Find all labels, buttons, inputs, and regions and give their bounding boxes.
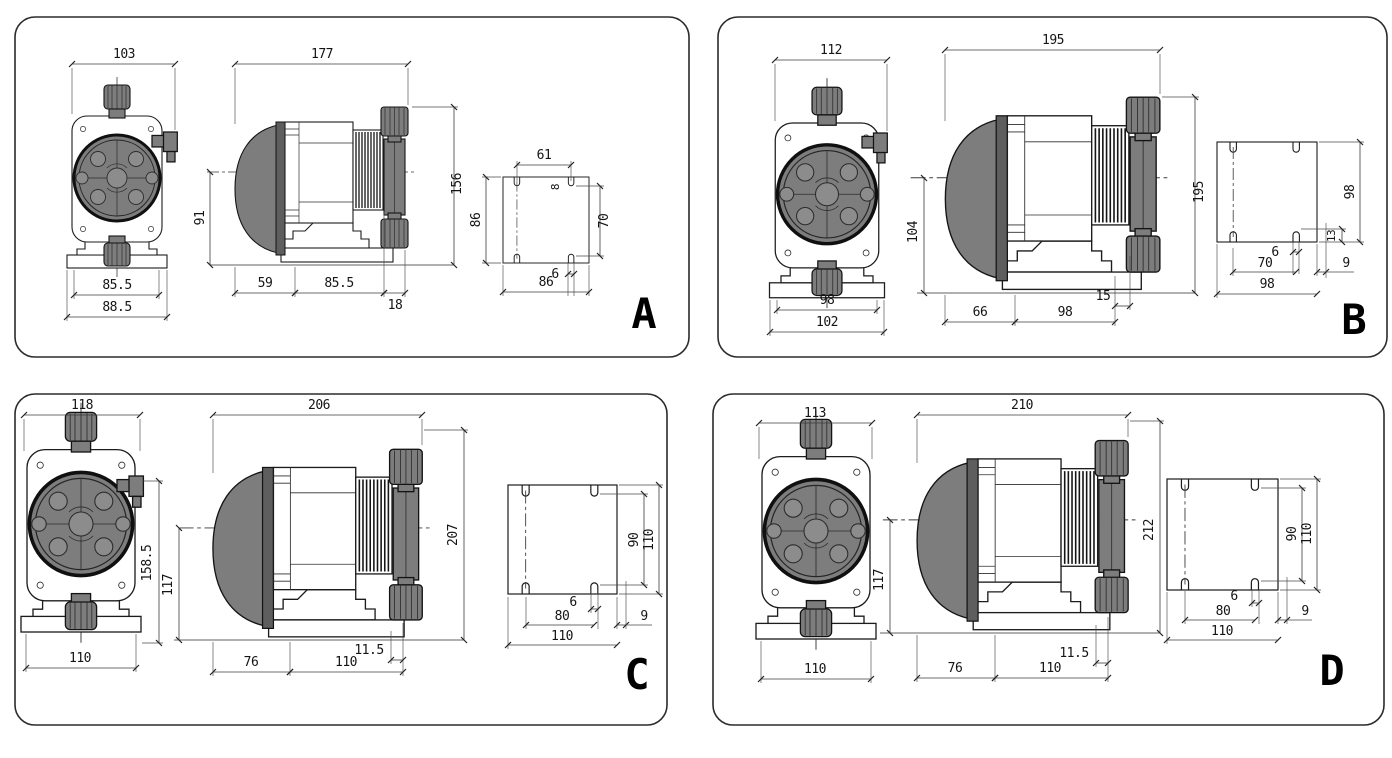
side-view xyxy=(911,97,1195,293)
panel-d: 113 110 210 212 117 76 110 11.5 90 xyxy=(712,393,1385,726)
dim-text: 6 xyxy=(569,595,576,610)
dim-text: 210 xyxy=(1011,398,1033,413)
dim-text: 85.5 xyxy=(324,276,353,291)
panel-label: A xyxy=(631,289,656,338)
dim-text: 118 xyxy=(71,398,93,413)
dimension-plate-bottom-width: 98 xyxy=(1217,244,1317,298)
side-view xyxy=(880,441,1160,633)
dim-text: 76 xyxy=(948,661,963,676)
dim-text: 206 xyxy=(308,398,330,413)
dim-text: 9 xyxy=(1342,256,1349,271)
dimension-plate-slot-width: 6 xyxy=(1271,245,1299,260)
dim-text: 113 xyxy=(804,406,826,421)
dim-text: 195 xyxy=(1192,181,1207,203)
dimension-side-height: 156 xyxy=(412,107,465,265)
dimension-plate-bottom-width: 86 xyxy=(503,265,589,296)
dimension-plate-edge-offset: 9 xyxy=(1317,244,1354,276)
dim-text: 98 xyxy=(1058,305,1073,320)
dim-text: 110 xyxy=(1039,661,1061,676)
dim-text: 110 xyxy=(1211,624,1233,639)
dim-text: 103 xyxy=(113,47,135,62)
front-view xyxy=(770,78,888,308)
dim-text: 86 xyxy=(539,275,554,290)
dim-text: 110 xyxy=(1300,523,1315,545)
dim-text: 98 xyxy=(820,293,835,308)
dim-text: 110 xyxy=(642,529,657,551)
dim-text: 104 xyxy=(906,220,921,243)
dim-text: 18 xyxy=(388,298,403,313)
dimension-side-center-height: 117 xyxy=(161,528,179,640)
dim-text: 76 xyxy=(244,655,259,670)
dim-text: 90 xyxy=(1285,527,1300,542)
dim-text: 59 xyxy=(258,276,273,291)
dimension-plate-slot-width: 6 xyxy=(1230,589,1259,604)
dim-text: 98 xyxy=(1260,277,1275,292)
dim-text: 6 xyxy=(1271,245,1278,260)
dimension-side-center-height: 104 xyxy=(906,178,924,293)
side-view xyxy=(174,449,464,640)
dim-text: 117 xyxy=(161,574,176,596)
dim-text: 86 xyxy=(469,213,484,228)
side-view xyxy=(207,107,454,265)
dim-text: 156 xyxy=(450,173,465,195)
dim-text: 90 xyxy=(627,533,642,548)
dim-text: 117 xyxy=(872,569,887,591)
dim-text: 15 xyxy=(1096,289,1111,304)
dimension-plate-left-height: 86 xyxy=(469,177,501,263)
dim-text: 11.5 xyxy=(354,643,383,658)
panel-b: 112 98 102 195 195 104 66 98 15 98 xyxy=(717,16,1388,358)
dimension-side-height: 207 xyxy=(424,430,468,640)
dim-text: 88.5 xyxy=(102,300,131,315)
dim-text: 195 xyxy=(1042,33,1064,48)
dimension-plate-edge-offset: 9 xyxy=(617,597,652,629)
dim-text: 158.5 xyxy=(140,545,155,582)
dimension-side-height: 212 xyxy=(1130,421,1164,633)
panel-label: D xyxy=(1319,646,1344,695)
dim-text: 70 xyxy=(597,214,612,229)
dimension-plate-slot-span: 80 xyxy=(526,597,594,629)
dim-text: 212 xyxy=(1142,519,1157,541)
panel-c: 118 158.5 110 206 207 117 76 110 11.5 xyxy=(14,393,668,726)
dim-text: 110 xyxy=(804,662,826,677)
dimension-plate-slot-span: 70 xyxy=(1233,248,1296,276)
dim-text: 91 xyxy=(193,211,208,226)
dimension-front-base: 85.5 xyxy=(74,270,159,299)
dimension-plate-slot-width: 6 xyxy=(551,267,574,282)
dimension-plate-edge-offset: 9 xyxy=(1278,592,1312,624)
dim-text: 112 xyxy=(820,43,842,58)
dimension-side-height: 195 xyxy=(1162,97,1207,293)
dim-text: 80 xyxy=(1216,604,1231,619)
dim-text: 207 xyxy=(446,524,461,546)
dim-text: 9 xyxy=(1301,604,1308,619)
dimension-plate-slot-span: 80 xyxy=(1185,591,1255,624)
panel-label: B xyxy=(1341,295,1366,344)
front-view xyxy=(21,403,143,643)
dim-text: 177 xyxy=(311,47,333,62)
dim-text: 80 xyxy=(555,609,570,624)
dimension-plate-slot-width: 6 xyxy=(569,595,598,610)
dim-text: 66 xyxy=(973,305,988,320)
dim-text: 102 xyxy=(816,315,838,330)
dim-text: 61 xyxy=(537,148,552,163)
dim-text: 70 xyxy=(1258,256,1273,271)
dim-text: 85.5 xyxy=(102,278,131,293)
dim-text: 11.5 xyxy=(1059,646,1088,661)
dim-text: 6 xyxy=(1230,589,1237,604)
dimension-side-center-height: 117 xyxy=(872,520,890,633)
dim-text: 110 xyxy=(551,629,573,644)
dim-text: 13 xyxy=(1325,230,1338,242)
dim-text: 98 xyxy=(1343,185,1358,200)
dimension-side-center-height: 91 xyxy=(193,172,210,265)
front-view xyxy=(67,77,177,277)
panel-label: C xyxy=(624,650,649,699)
dim-text: 8 xyxy=(549,184,562,190)
panel-a: 103 85.5 88.5 177 156 91 59 85.5 18 xyxy=(14,16,690,358)
dim-text: 9 xyxy=(640,609,647,624)
front-view xyxy=(756,410,876,650)
dim-text: 110 xyxy=(69,651,91,666)
dimension-front-height: 158.5 xyxy=(140,481,163,643)
